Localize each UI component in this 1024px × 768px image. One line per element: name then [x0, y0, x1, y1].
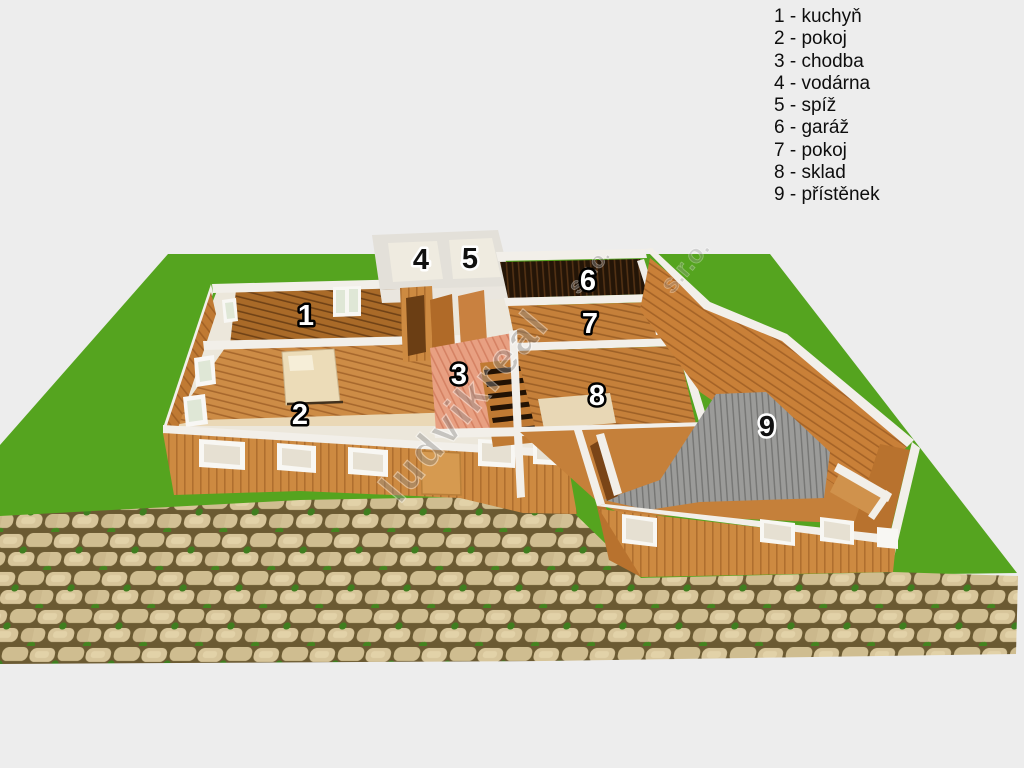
legend-item-3: 3 - chodba — [774, 51, 880, 73]
floor-plan-render: ludvikreal s.r.o. s.r.o. 1 2 3 4 5 6 7 8… — [0, 0, 1024, 768]
bed-pillow — [288, 355, 314, 371]
legend-item-8: 8 - sklad — [774, 162, 880, 184]
legend: 1 - kuchyň 2 - pokoj 3 - chodba 4 - vodá… — [774, 6, 880, 207]
room-number-4: 4 — [413, 244, 429, 276]
back-wall-window-pane-right — [349, 289, 358, 312]
room-number-3: 3 — [451, 359, 467, 391]
legend-item-6: 6 - garáž — [774, 117, 880, 139]
legend-item-5: 5 - spíž — [774, 95, 880, 117]
legend-item-4: 4 - vodárna — [774, 73, 880, 95]
room-number-8: 8 — [589, 380, 605, 412]
legend-item-1: 1 - kuchyň — [774, 6, 880, 28]
legend-item-2: 2 - pokoj — [774, 28, 880, 50]
left-wall-window-3-pane — [187, 399, 203, 422]
legend-item-9: 9 - přístěnek — [774, 184, 880, 206]
left-wall-window-2-pane — [198, 360, 212, 382]
room-number-9: 9 — [759, 411, 775, 443]
room-number-7: 7 — [582, 308, 598, 340]
legend-item-7: 7 - pokoj — [774, 140, 880, 162]
front-window-1-pane — [204, 444, 240, 465]
front-window-2-pane — [282, 448, 311, 468]
room-number-1: 1 — [298, 300, 314, 332]
room-number-6: 6 — [580, 265, 596, 297]
room-number-2: 2 — [292, 399, 308, 431]
back-wall-window-pane-left — [336, 290, 345, 313]
rb-front-window-4 — [877, 527, 898, 549]
room3-door-opening — [406, 295, 426, 356]
rb-front-window-1-pane — [626, 518, 653, 543]
room-number-5: 5 — [462, 243, 478, 275]
